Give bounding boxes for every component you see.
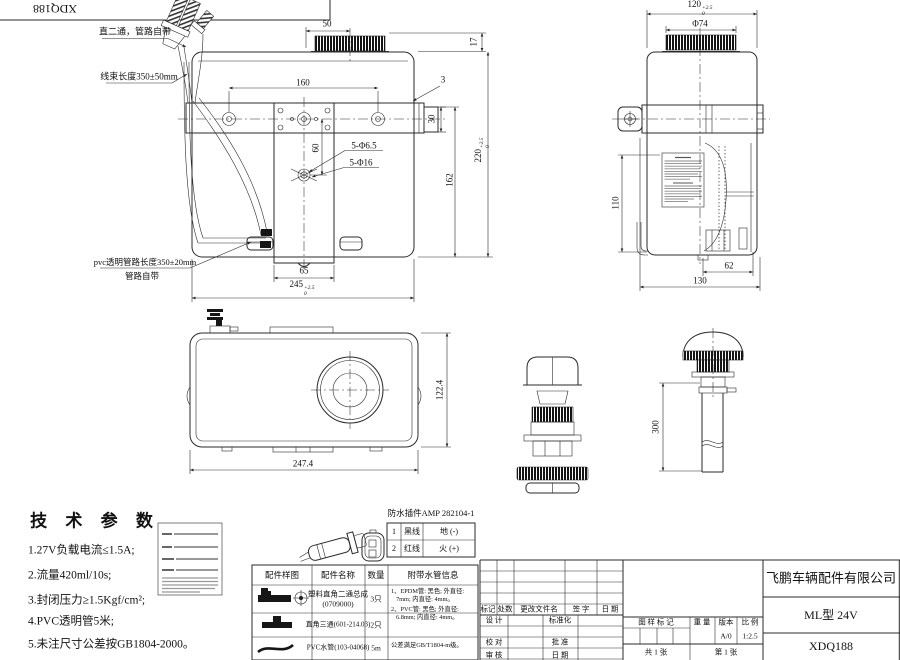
parts-header-sample: 配件样图	[265, 571, 299, 580]
note-pvc-line2: 管路自带	[125, 272, 159, 281]
wiring-row-polarity: 地 (-)	[440, 528, 458, 536]
parts-row-name2: (0709000)	[322, 600, 353, 608]
note-fitting: 直二通，管路自带	[99, 28, 171, 37]
dim-120: 120+2.50	[687, 0, 712, 18]
dim-245: 245+2.50	[289, 280, 314, 298]
titleblock-sheet-no: 第 1 张	[715, 648, 738, 656]
dim-holes-large: 5-Φ16	[349, 159, 372, 168]
parts-row-qty: 2只	[370, 621, 381, 629]
dim-300: 300	[652, 420, 661, 434]
titleblock-rev-count: 处数	[498, 605, 513, 613]
side-view	[612, 28, 770, 264]
top-view	[187, 309, 421, 452]
dim-220: 220+2.50	[474, 137, 492, 162]
nameplate-card	[158, 523, 222, 595]
parts-header-qty: 数量	[367, 571, 384, 580]
titleblock-design: 设 计	[486, 616, 503, 624]
dim-110: 110	[612, 196, 621, 209]
dim-65: 65	[300, 267, 309, 276]
titleblock-code: XDQ188	[809, 640, 853, 652]
titleblock-rev-sign: 签 字	[573, 605, 590, 613]
titleblock-model: ML型 24V	[804, 609, 858, 621]
wiring-row-num: 1	[392, 528, 396, 536]
engineering-drawing-sheet: XDQ188 直二通，管路自带 线束长度350±50mm pvc透明管路长度35…	[0, 0, 900, 660]
wiring-row-num: 2	[392, 545, 396, 553]
wiring-table-grid	[387, 523, 475, 557]
wiring-row-polarity: 火 (+)	[439, 545, 459, 553]
wiring-row-wire: 红线	[404, 545, 420, 553]
tol-lower: 0	[486, 145, 492, 148]
drawing-line-art	[0, 0, 900, 660]
dim-holes-small: 5-Φ6.5	[351, 142, 376, 151]
tol-lower: 0	[702, 12, 705, 18]
note-harness-length: 线束长度350±50mm	[100, 73, 177, 82]
hose-info-line: 1、EPDM管: 黑色; 外直径:	[391, 589, 464, 595]
tech-spec-item: 3.封闭压力≥1.5Kgf/cm²;	[28, 595, 145, 607]
titleblock-sheet-total: 共 1 张	[645, 648, 668, 656]
dim-245-tolerance: +2.50	[304, 286, 315, 298]
titleblock-rev-file: 更改文件名	[520, 605, 558, 613]
dim-60: 60	[312, 144, 321, 153]
parts-row-name: PVC水管(103-04068)	[307, 645, 370, 652]
dim-17: 17	[470, 38, 479, 47]
filler-tube-view	[659, 328, 743, 472]
titleblock-standardize: 标准化	[549, 616, 572, 624]
parts-header-info: 附带水管信息	[407, 571, 458, 580]
hose-info-line: 公差满足GB/T1804-m级。	[391, 643, 463, 649]
titleblock-check: 校 对	[486, 638, 503, 646]
hose-info-line: 6.8mm; 内直径: 4mm。	[396, 615, 458, 621]
parts-row-name: 塑料直角二通总成	[308, 590, 368, 598]
titleblock-rev-mark: 标记	[481, 605, 496, 613]
titleblock-rev-date: 日 期	[602, 605, 619, 613]
wiring-row-wire: 黑线	[404, 528, 420, 536]
dim-162: 162	[446, 173, 455, 187]
dim-245-value: 245	[289, 279, 303, 289]
dim-120-tolerance: +2.50	[702, 6, 713, 18]
parts-row-qty: 3只	[370, 595, 381, 603]
tech-spec-item: 2.流量420ml/10s;	[28, 570, 111, 582]
dim-220-value: 220	[473, 149, 483, 163]
cap-exploded-view	[517, 357, 588, 493]
titleblock-scale-value: 1:2.5	[742, 632, 757, 640]
titleblock-approve: 批 准	[552, 638, 569, 646]
tech-spec-item: 4.PVC透明管5米;	[28, 616, 114, 628]
parts-row-qty: 5m	[371, 644, 381, 652]
front-view	[155, 0, 448, 272]
tech-specs-title: 技 术 参 数	[30, 513, 160, 530]
dim-130: 130	[693, 277, 707, 286]
titleblock-company: 飞鹏车辆配件有限公司	[766, 572, 896, 585]
dim-cap-diameter: Φ74	[692, 20, 708, 29]
dim-247-4: 247.4	[293, 460, 313, 469]
titleblock-scale-label: 比 例	[742, 618, 759, 626]
dim-220-tolerance: +2.50	[480, 137, 492, 148]
titleblock-version-value: A/0	[720, 632, 731, 640]
parts-row-name: 直角三通(601-214.03)	[306, 622, 371, 629]
dim-120-value: 120	[687, 0, 701, 9]
tech-spec-item: 5.未注尺寸公差按GB1804-2000。	[28, 639, 194, 651]
note-pvc-line1: pvc透明管路长度350±20mm	[94, 258, 196, 267]
titleblock-weight-label: 重 量	[694, 618, 711, 626]
titleblock-date: 日 期	[552, 651, 569, 659]
titleblock-version-label: 版本	[719, 618, 734, 626]
dim-3: 3	[441, 76, 446, 85]
dim-50: 50	[323, 20, 332, 29]
connector-detail	[297, 529, 384, 567]
hose-info-line: 7mm; 内直径: 4mm。	[396, 597, 454, 603]
dim-30: 30	[428, 115, 437, 124]
parts-header-name: 配件名称	[321, 571, 355, 580]
hose-info-line: 2、PVC管: 黑色; 外直径:	[391, 607, 459, 613]
tol-lower: 0	[304, 292, 307, 298]
titleblock-audit: 审 核	[486, 651, 503, 659]
dim-62: 62	[725, 262, 734, 271]
frame-ref-label: XDQ188	[33, 3, 77, 15]
dim-122-4: 122.4	[436, 380, 445, 400]
wiring-table-title: 防水插件AMP 282104-1	[388, 509, 475, 518]
dim-160: 160	[296, 79, 310, 88]
tech-spec-item: 1.27V负载电流≤1.5A;	[28, 545, 135, 557]
titleblock-mark-header: 图 样 标 记	[638, 618, 674, 626]
